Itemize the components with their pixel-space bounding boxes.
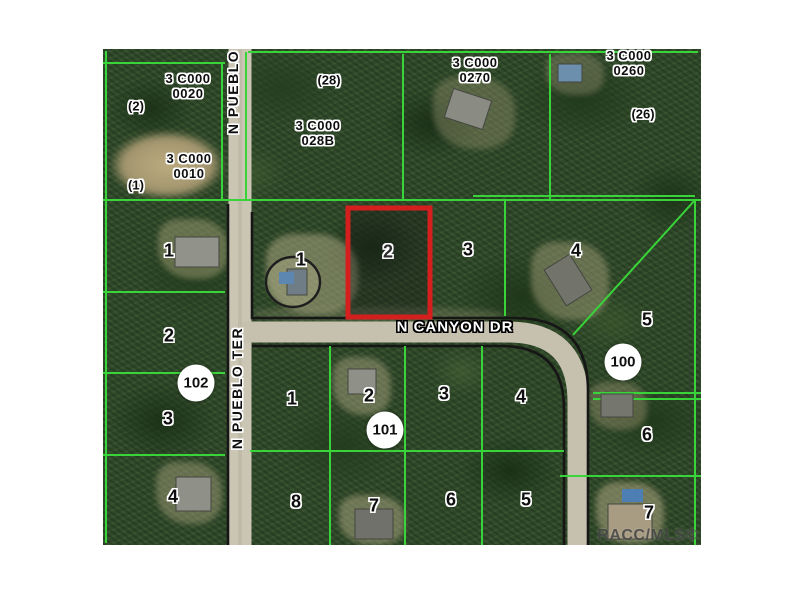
lot-number-label: 1 <box>287 389 297 410</box>
road-label-n-pueblo: N PUEBLO <box>225 50 241 134</box>
block-id-label: 3 C0000020 <box>166 71 211 101</box>
lot-number-label: 4 <box>571 241 581 262</box>
forest-clearing <box>156 462 222 524</box>
lot-number-label: 6 <box>642 425 652 446</box>
lot-number-label: 5 <box>642 310 652 331</box>
lot-number-label: 3 <box>163 409 173 430</box>
forest-clearing <box>333 357 391 415</box>
forest-clearing <box>546 53 604 95</box>
lot-number-label: 2 <box>164 326 174 347</box>
lot-number-label: 7 <box>644 503 654 524</box>
block-id-label: 3 C000028B <box>296 118 341 148</box>
lot-number-label: 4 <box>516 387 526 408</box>
block-id-label: 3 C0000260 <box>607 49 652 78</box>
lot-number-label: 1 <box>164 241 174 262</box>
lot-number-label: 7 <box>369 496 379 517</box>
street-number-circle: 100 <box>605 344 642 381</box>
parcel-map-image[interactable]: 3 C0000020 3 C0000010 3 C000028B 3 C0000… <box>103 49 701 545</box>
highlighted-lot-number: 2 <box>383 242 393 263</box>
lot-number-label: 8 <box>291 492 301 513</box>
road-label-n-canyon-dr: N CANYON DR <box>397 319 514 336</box>
forest-clearing <box>433 77 515 149</box>
alt-key-label: (1) <box>128 178 144 193</box>
lot-number-label: 6 <box>446 490 456 511</box>
alt-key-label: (26) <box>631 107 654 122</box>
alt-key-label: (2) <box>128 99 144 114</box>
lot-number-label: 4 <box>168 487 178 508</box>
block-id-label: 3 C0000270 <box>453 55 498 85</box>
forest-clearing <box>266 234 358 314</box>
lot-number-label: 3 <box>439 384 449 405</box>
lot-number-label: 2 <box>364 386 374 407</box>
street-number-circle: 102 <box>178 365 215 402</box>
lot-number-label: 5 <box>521 490 531 511</box>
highlighted-parcel-outline <box>348 208 430 317</box>
lot-number-label: 3 <box>463 240 473 261</box>
forest-clearing <box>589 382 647 430</box>
alt-key-label: (28) <box>317 73 340 88</box>
mls-watermark: RACC/MLS© <box>597 527 698 545</box>
road-label-n-pueblo-ter: N PUEBLO TER <box>229 327 245 449</box>
street-number-circle: 101 <box>367 412 404 449</box>
lot-number-label: 1 <box>296 250 306 271</box>
block-id-label: 3 C0000010 <box>167 151 212 181</box>
